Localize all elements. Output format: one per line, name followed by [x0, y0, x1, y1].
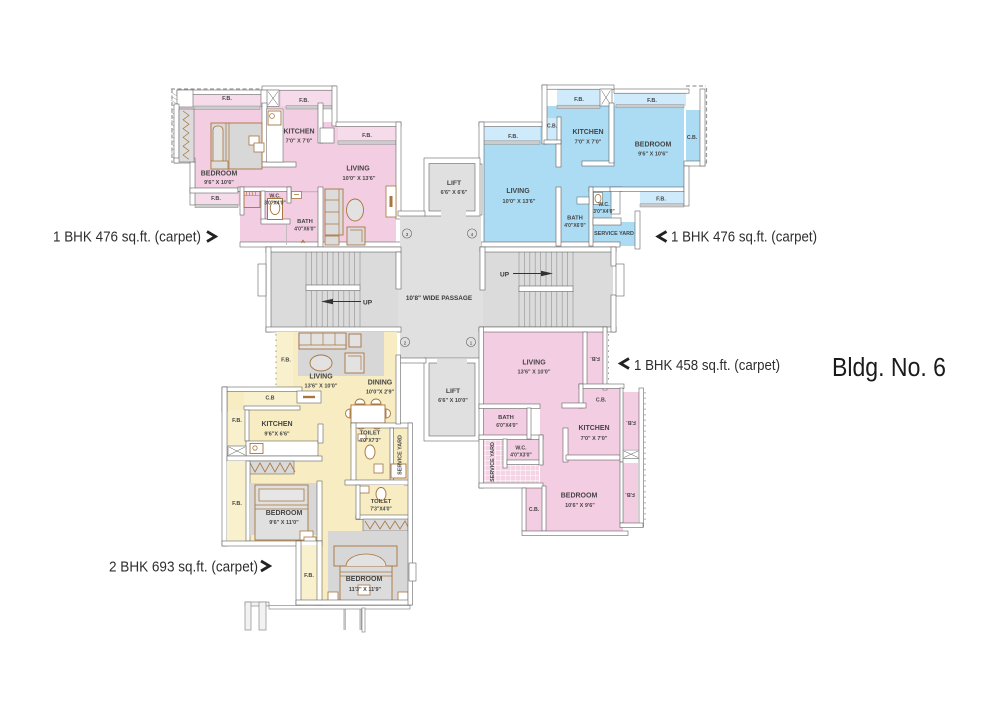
- svg-text:6'6" X 10'0": 6'6" X 10'0": [438, 398, 468, 404]
- svg-text:7'3"X4'0": 7'3"X4'0": [370, 507, 392, 513]
- svg-text:W.C.: W.C.: [269, 194, 281, 200]
- svg-text:9'6" X 10'6": 9'6" X 10'6": [638, 152, 668, 158]
- svg-text:10'0" X 13'6": 10'0" X 13'6": [503, 199, 536, 205]
- svg-text:C.B: C.B: [266, 396, 275, 402]
- svg-text:LIFT: LIFT: [447, 180, 462, 187]
- svg-text:LIFT: LIFT: [446, 388, 461, 395]
- svg-text:F.B.: F.B.: [362, 133, 372, 139]
- svg-text:13'6" X 10'0": 13'6" X 10'0": [305, 384, 338, 390]
- svg-text:BATH: BATH: [297, 219, 313, 225]
- svg-text:F.B.: F.B.: [508, 134, 518, 140]
- svg-text:BEDROOM: BEDROOM: [266, 510, 303, 517]
- svg-text:TOILET: TOILET: [371, 499, 392, 505]
- svg-text:SERVICE YARD: SERVICE YARD: [490, 442, 496, 482]
- svg-text:1: 1: [470, 341, 473, 347]
- svg-text:BEDROOM: BEDROOM: [635, 142, 672, 149]
- svg-text:4: 4: [471, 232, 474, 238]
- svg-text:UP: UP: [500, 272, 510, 279]
- svg-text:4'0"X7'3": 4'0"X7'3": [359, 438, 381, 444]
- svg-text:F.B.: F.B.: [211, 196, 221, 202]
- svg-text:1 BHK 476 sq.ft. (carpet): 1 BHK 476 sq.ft. (carpet): [671, 230, 817, 246]
- svg-text:10'0" X 13'6": 10'0" X 13'6": [343, 176, 376, 182]
- svg-text:6'0"X4'0": 6'0"X4'0": [496, 423, 518, 429]
- svg-text:F.B.: F.B.: [281, 358, 291, 364]
- svg-text:3: 3: [406, 232, 409, 238]
- svg-text:DINING: DINING: [368, 380, 393, 387]
- svg-text:11'3" X 11'9": 11'3" X 11'9": [349, 587, 382, 593]
- svg-text:9'6"X 6'6": 9'6"X 6'6": [264, 432, 290, 438]
- svg-text:UP: UP: [363, 300, 373, 307]
- svg-text:TOILET: TOILET: [360, 431, 381, 437]
- svg-text:SERVICE YARD: SERVICE YARD: [594, 231, 634, 237]
- svg-text:F.B.: F.B.: [222, 96, 232, 102]
- svg-text:LIVING: LIVING: [309, 374, 333, 381]
- svg-text:7'0" X 7'0": 7'0" X 7'0": [581, 436, 608, 442]
- svg-text:KITCHEN: KITCHEN: [578, 425, 609, 432]
- svg-text:C.B.: C.B.: [529, 507, 540, 513]
- svg-text:2 BHK 693 sq.ft. (carpet): 2 BHK 693 sq.ft. (carpet): [109, 560, 258, 576]
- svg-text:1 BHK 476 sq.ft. (carpet): 1 BHK 476 sq.ft. (carpet): [53, 230, 201, 246]
- svg-text:F.B.: F.B.: [647, 98, 657, 104]
- svg-text:2: 2: [404, 341, 407, 347]
- svg-text:LIVING: LIVING: [506, 188, 530, 195]
- svg-text:BEDROOM: BEDROOM: [561, 493, 598, 500]
- svg-text:KITCHEN: KITCHEN: [572, 129, 603, 136]
- svg-text:BATH: BATH: [567, 216, 583, 222]
- svg-text:F.B.: F.B.: [232, 501, 242, 507]
- svg-text:W.C.: W.C.: [598, 202, 610, 208]
- svg-text:4'0"X6'0": 4'0"X6'0": [564, 223, 586, 229]
- svg-text:10'6" X 9'6": 10'6" X 9'6": [565, 503, 595, 509]
- svg-text:LIVING: LIVING: [522, 360, 546, 367]
- svg-text:7'0" X 7'0": 7'0" X 7'0": [286, 139, 313, 145]
- svg-text:10'8" WIDE PASSAGE: 10'8" WIDE PASSAGE: [406, 295, 473, 302]
- svg-text:BEDROOM: BEDROOM: [201, 171, 238, 178]
- svg-text:1 BHK 458 sq.ft. (carpet): 1 BHK 458 sq.ft. (carpet): [634, 358, 780, 374]
- svg-text:F.B.: F.B.: [299, 98, 309, 104]
- svg-text:F.B.: F.B.: [574, 97, 584, 103]
- svg-text:9'6" X 10'6": 9'6" X 10'6": [204, 180, 234, 186]
- svg-text:KITCHEN: KITCHEN: [283, 129, 314, 136]
- svg-text:LIVING: LIVING: [346, 166, 370, 173]
- svg-text:F.B.: F.B.: [232, 418, 242, 424]
- svg-text:C.B.: C.B.: [596, 398, 607, 404]
- svg-text:3'0"X4'0": 3'0"X4'0": [593, 209, 615, 215]
- svg-text:F.B.: F.B.: [626, 419, 636, 425]
- svg-text:BATH: BATH: [498, 415, 514, 421]
- svg-text:W.C.: W.C.: [515, 446, 527, 452]
- svg-text:KITCHEN: KITCHEN: [261, 421, 292, 428]
- svg-text:6'6" X 6'6": 6'6" X 6'6": [441, 190, 468, 196]
- svg-text:F.B.: F.B.: [625, 491, 635, 497]
- svg-text:BEDROOM: BEDROOM: [346, 576, 383, 583]
- svg-text:C.B.: C.B.: [547, 124, 558, 130]
- svg-text:9'6" X 11'0": 9'6" X 11'0": [269, 520, 299, 526]
- svg-text:3'0"X4'0": 3'0"X4'0": [264, 201, 286, 207]
- svg-text:7'0" X 7'0": 7'0" X 7'0": [575, 140, 602, 146]
- svg-text:Bldg. No. 6: Bldg. No. 6: [832, 354, 946, 382]
- svg-text:4'0"X3'0": 4'0"X3'0": [510, 453, 532, 459]
- svg-text:SERVICE YARD: SERVICE YARD: [398, 435, 404, 475]
- svg-text:C.B.: C.B.: [687, 135, 698, 141]
- svg-text:13'6" X 10'0": 13'6" X 10'0": [518, 370, 551, 376]
- svg-text:F.B.: F.B.: [590, 355, 600, 361]
- svg-text:4'0"X6'0": 4'0"X6'0": [294, 227, 316, 233]
- svg-text:F.B.: F.B.: [656, 197, 666, 203]
- svg-text:10'0"X 2'9": 10'0"X 2'9": [366, 390, 395, 396]
- svg-text:F.B.: F.B.: [304, 573, 314, 579]
